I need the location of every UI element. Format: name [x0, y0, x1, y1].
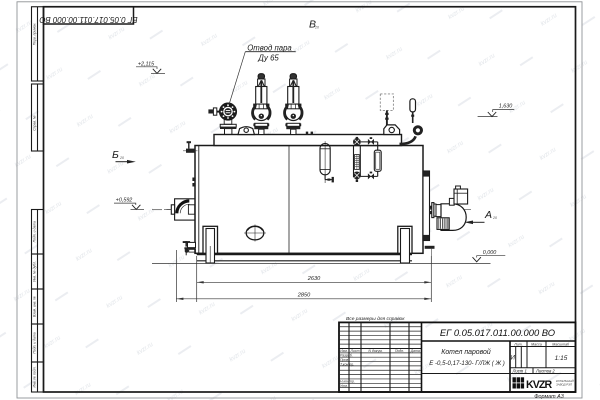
- svg-text:Б: Б: [112, 149, 119, 161]
- svg-text:Т.контр.: Т.контр.: [340, 362, 354, 366]
- svg-text:Подп. и дата: Подп. и дата: [33, 332, 37, 353]
- svg-text:Утв.: Утв.: [340, 384, 348, 388]
- svg-text:Дата: Дата: [410, 349, 420, 353]
- svg-text:Котел паровой: Котел паровой: [441, 348, 491, 356]
- svg-text:ЕГ 0.05.017.011.00.000 ВО: ЕГ 0.05.017.011.00.000 ВО: [39, 15, 137, 24]
- svg-text:1:15: 1:15: [555, 355, 568, 362]
- svg-text:Отвод пара: Отвод пара: [247, 44, 292, 53]
- svg-text:Инв. № дубл.: Инв. № дубл.: [33, 261, 37, 282]
- svg-text:Разраб.: Разраб.: [340, 354, 353, 358]
- svg-text:Лит.: Лит.: [513, 342, 522, 346]
- svg-text:1,630: 1,630: [499, 104, 513, 110]
- svg-text:N докум.: N докум.: [368, 349, 382, 353]
- svg-text:Лист: Лист: [349, 349, 359, 353]
- svg-text:Перв. примен.: Перв. примен.: [33, 23, 37, 46]
- svg-text:ЗАВОД РЭП: ЗАВОД РЭП: [556, 383, 573, 387]
- svg-text:Пров.: Пров.: [340, 358, 349, 362]
- svg-text:Е -0,5-0,17-130- Г/ЛЖ ( Ж ): Е -0,5-0,17-130- Г/ЛЖ ( Ж ): [429, 360, 505, 367]
- svg-text:Формат А3: Формат А3: [534, 394, 564, 400]
- svg-text:Лист 1: Лист 1: [512, 368, 527, 373]
- svg-text:А: А: [484, 209, 492, 221]
- svg-text:Подп. и дата: Подп. и дата: [33, 221, 37, 242]
- svg-text:Н.контр.: Н.контр.: [340, 380, 355, 384]
- svg-text:2850: 2850: [297, 292, 311, 298]
- svg-text:KVZR: KVZR: [526, 379, 552, 391]
- svg-text:20: 20: [314, 26, 319, 30]
- svg-text:2630: 2630: [307, 276, 321, 282]
- svg-text:+0,592: +0,592: [116, 198, 133, 204]
- svg-text:ЕГ 0.05.017.011.00.000 ВО: ЕГ 0.05.017.011.00.000 ВО: [440, 327, 556, 338]
- svg-text:20: 20: [492, 216, 497, 220]
- svg-text:Подп.: Подп.: [395, 349, 404, 353]
- svg-text:И: И: [511, 356, 516, 362]
- svg-text:Листов 2: Листов 2: [535, 368, 555, 373]
- svg-text:0,000: 0,000: [483, 250, 497, 256]
- svg-text:Все размеры для справок: Все размеры для справок: [346, 316, 405, 322]
- svg-text:Изм.: Изм.: [340, 349, 347, 353]
- svg-text:Взам. инв. №: Взам. инв. №: [33, 296, 37, 317]
- svg-text:Масштаб: Масштаб: [552, 342, 570, 346]
- svg-text:Справ. №: Справ. №: [33, 115, 37, 131]
- svg-text:Масса: Масса: [531, 342, 542, 346]
- svg-text:Ду 65: Ду 65: [257, 54, 279, 63]
- svg-text:Инв. № подл.: Инв. № подл.: [33, 366, 37, 387]
- svg-text:20: 20: [119, 156, 124, 160]
